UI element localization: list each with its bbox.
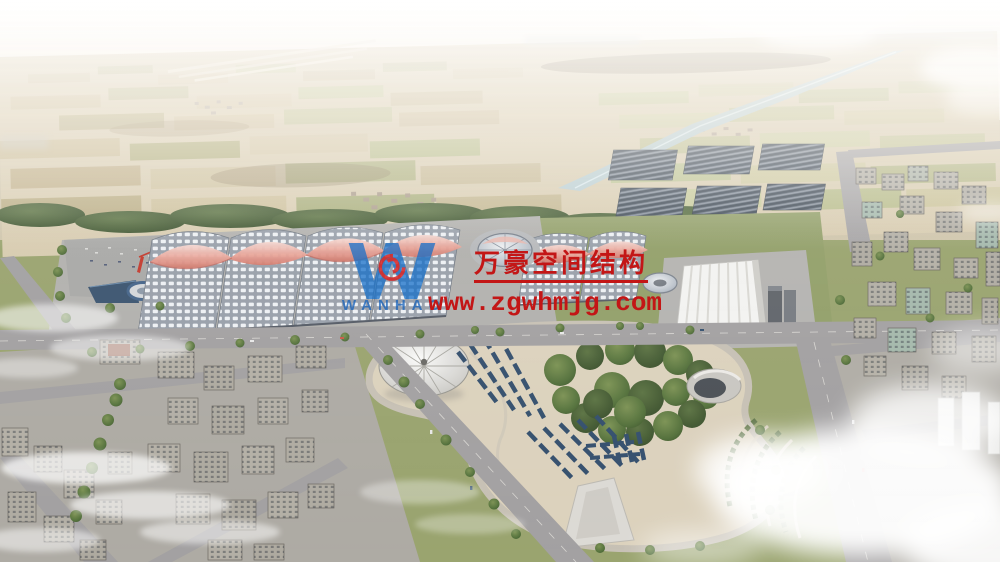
global-haze bbox=[0, 0, 1000, 562]
aerial-render: WANHAO 万豪空间结构 www.zgwhmjg.com bbox=[0, 0, 1000, 562]
rendered-scene bbox=[0, 0, 1000, 562]
